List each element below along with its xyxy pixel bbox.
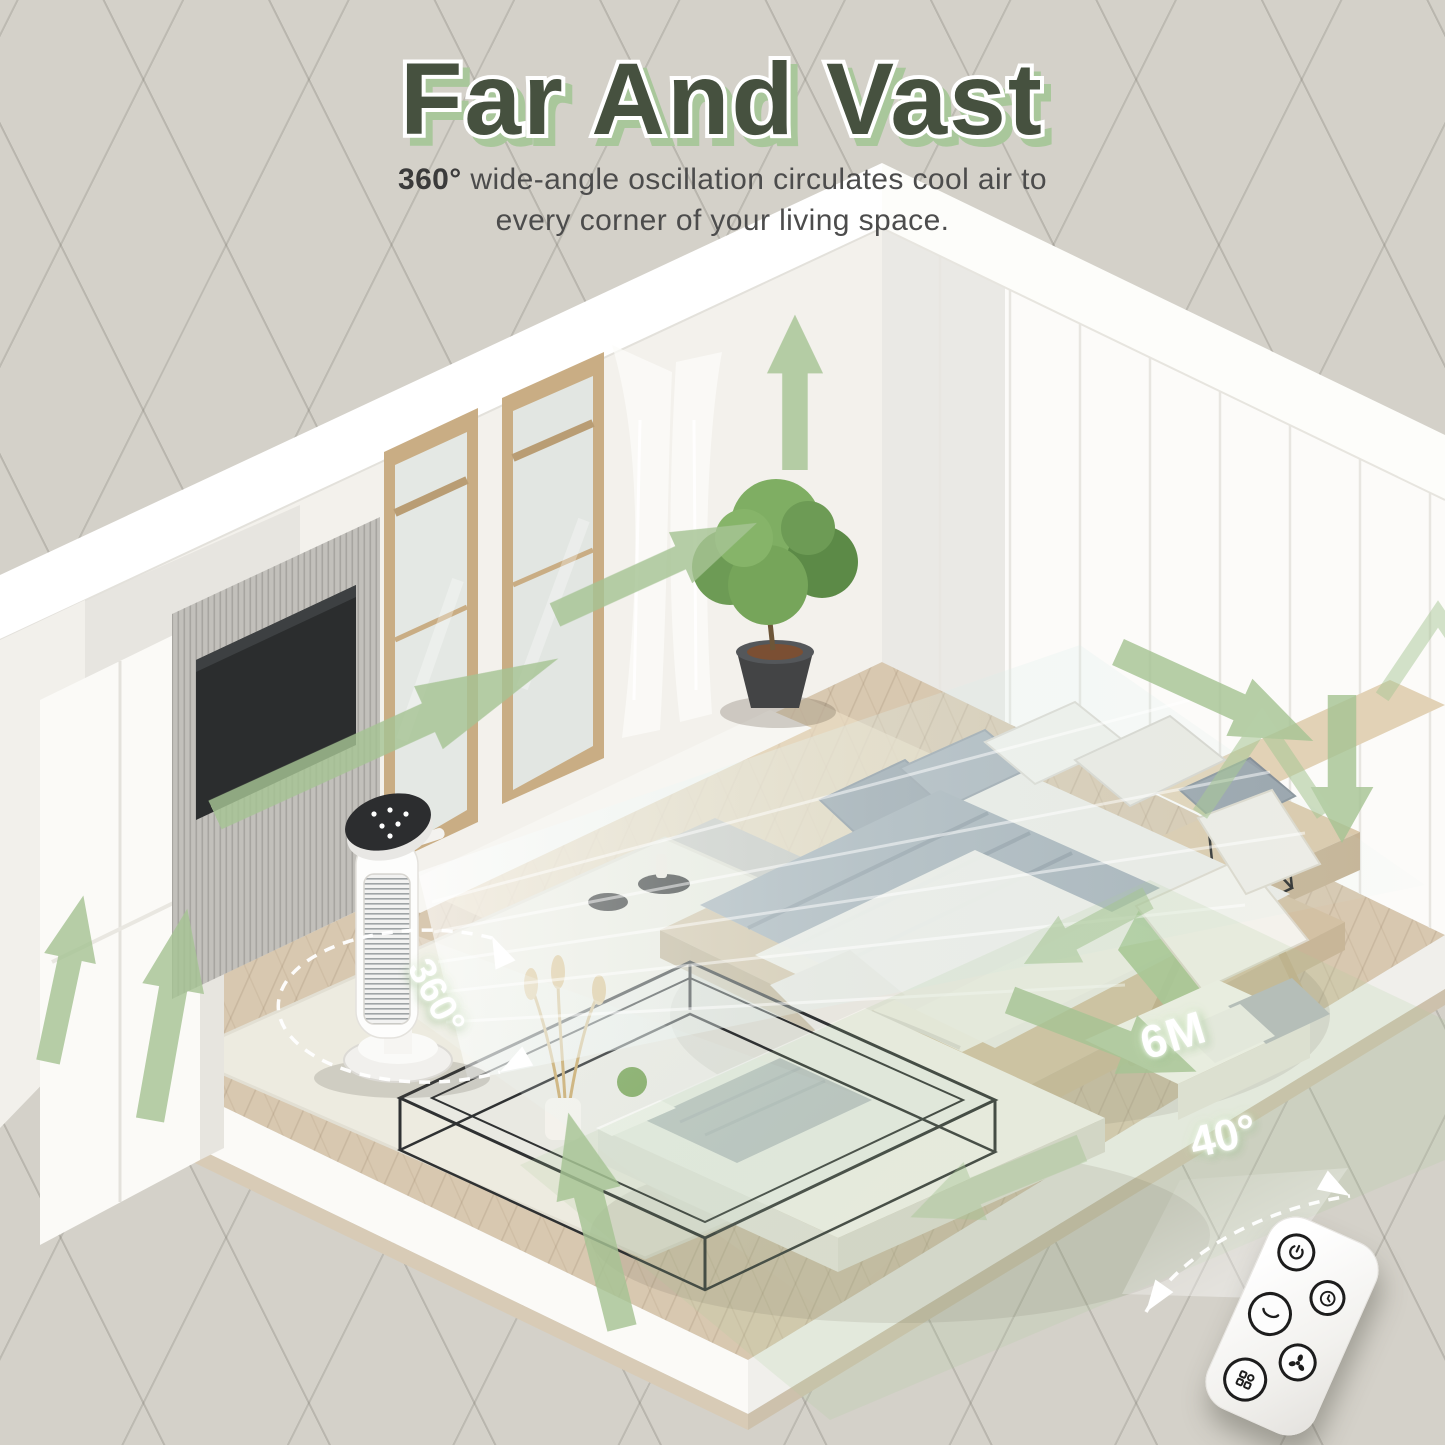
subtitle-highlight: 360° — [398, 163, 462, 196]
subtitle-line-1: 360° wide-angle oscillation circulates c… — [0, 160, 1445, 201]
remote-fan-speed-button — [1273, 1337, 1323, 1387]
product-infographic: Far And Vast Far And Vast 360° wide-angl… — [0, 0, 1445, 1445]
mode-grid-icon — [1231, 1365, 1260, 1394]
remote-power-button — [1271, 1227, 1321, 1277]
window-right — [502, 352, 604, 804]
subtitle-line-2: every corner of your living space. — [0, 201, 1445, 242]
remote-swing-button — [1241, 1285, 1299, 1343]
subtitle: 360° wide-angle oscillation circulates c… — [0, 160, 1445, 242]
remote-mode-button — [1216, 1351, 1274, 1409]
title-block: Far And Vast Far And Vast — [0, 26, 1445, 176]
power-icon — [1283, 1239, 1309, 1265]
timer-icon — [1315, 1285, 1340, 1310]
fan-grille — [364, 874, 410, 1024]
page-title: Far And Vast — [400, 42, 1044, 156]
fan-icon — [1284, 1349, 1312, 1377]
swing-icon — [1254, 1298, 1286, 1330]
remote-timer-button — [1304, 1274, 1352, 1322]
subtitle-text: wide-angle oscillation circulates cool a… — [462, 163, 1047, 196]
